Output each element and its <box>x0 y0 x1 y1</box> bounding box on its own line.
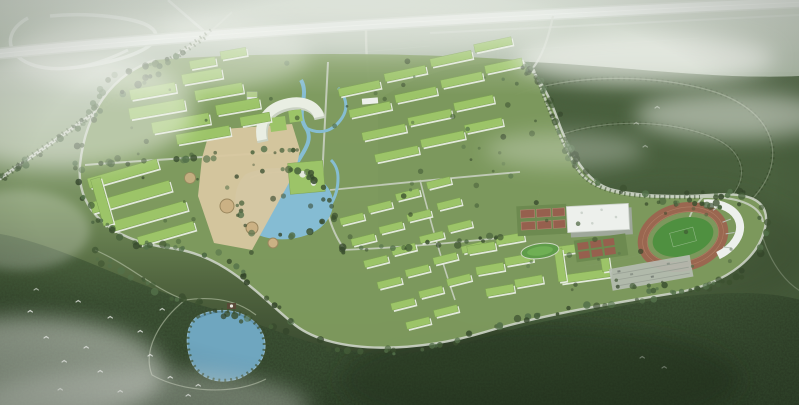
aerial-rendering <box>0 0 799 405</box>
vignette <box>0 0 799 405</box>
masterplan-scene <box>0 0 799 405</box>
